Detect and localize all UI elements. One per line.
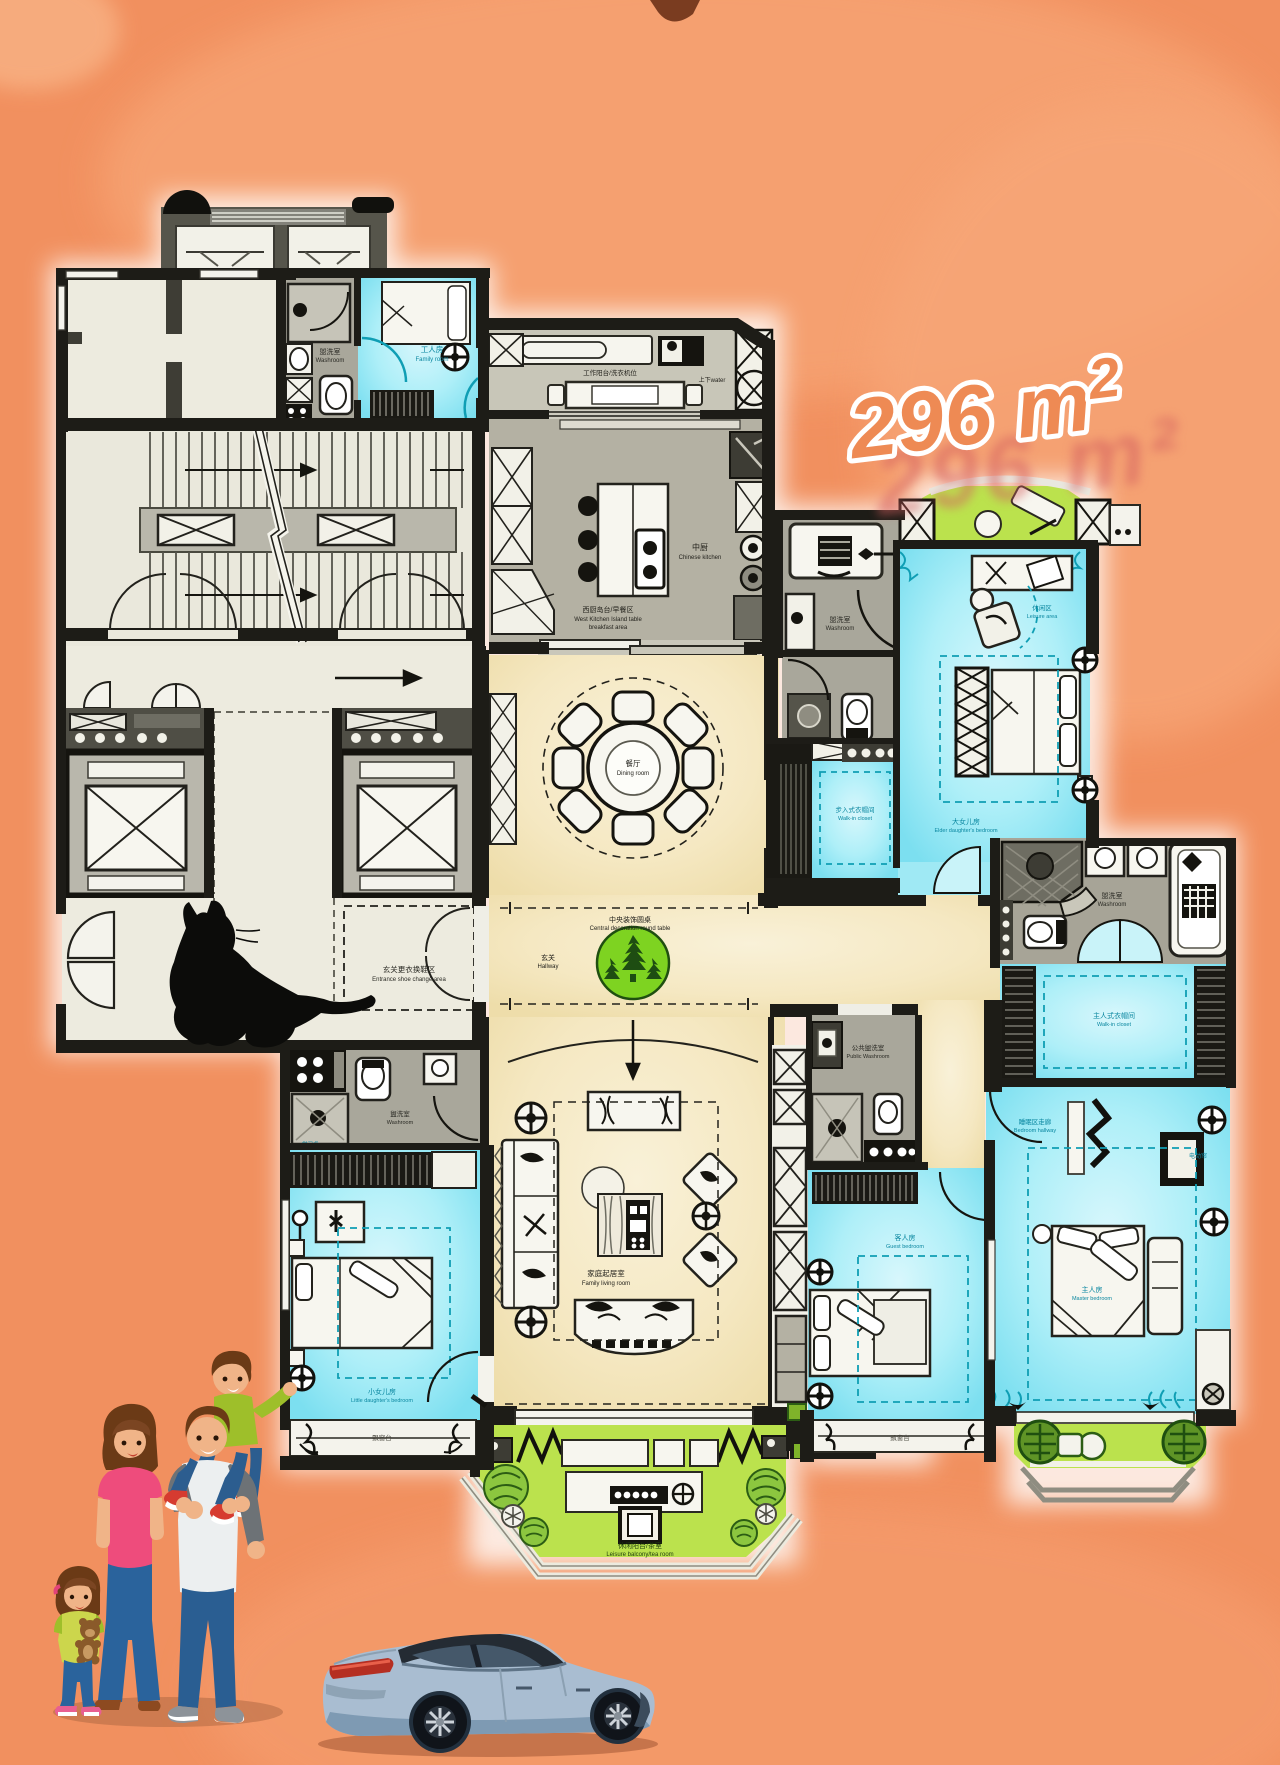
svg-text:睡眠区走廊: 睡眠区走廊 <box>1019 1117 1052 1126</box>
svg-text:Chinese kitchen: Chinese kitchen <box>679 555 722 561</box>
svg-text:Central decoration round table: Central decoration round table <box>590 926 671 932</box>
svg-text:Washroom: Washroom <box>316 358 345 364</box>
svg-text:大女儿房: 大女儿房 <box>952 817 980 826</box>
svg-text:Family living room: Family living room <box>582 1281 630 1287</box>
svg-text:Walk-in closet: Walk-in closet <box>1097 1022 1131 1028</box>
svg-text:Family room: Family room <box>415 357 448 363</box>
svg-text:Master bedroom: Master bedroom <box>1072 1296 1112 1302</box>
svg-text:西厨岛台/早餐区: 西厨岛台/早餐区 <box>583 605 634 614</box>
svg-text:公共盥洗室: 公共盥洗室 <box>852 1043 885 1052</box>
svg-text:小女儿房: 小女儿房 <box>368 1387 396 1396</box>
svg-text:Bedroom hallway: Bedroom hallway <box>1014 1128 1056 1134</box>
svg-text:工作阳台/洗衣机位: 工作阳台/洗衣机位 <box>583 368 637 377</box>
svg-text:工人房: 工人房 <box>421 344 444 354</box>
svg-text:Dining room: Dining room <box>617 771 649 777</box>
svg-text:休闲区: 休闲区 <box>1032 603 1052 612</box>
svg-text:Walk-in closet: Walk-in closet <box>838 816 872 822</box>
svg-text:Guest bedroom: Guest bedroom <box>886 1244 924 1250</box>
svg-text:Little daughter's bedroom: Little daughter's bedroom <box>351 1398 413 1404</box>
svg-text:Public Washroom: Public Washroom <box>847 1054 890 1060</box>
svg-text:飘窗台: 飘窗台 <box>890 1433 910 1442</box>
svg-text:盥洗室: 盥洗室 <box>830 615 851 624</box>
svg-text:Leisure balcony/tea room: Leisure balcony/tea room <box>606 1552 673 1558</box>
svg-text:盥洗室: 盥洗室 <box>320 347 341 356</box>
svg-text:餐厅: 餐厅 <box>626 759 641 768</box>
svg-text:盥洗室: 盥洗室 <box>390 1109 410 1118</box>
svg-text:Washroom: Washroom <box>826 626 855 632</box>
svg-text:步入式衣帽间: 步入式衣帽间 <box>836 805 875 814</box>
svg-text:Leisure area: Leisure area <box>1027 614 1059 620</box>
svg-text:主人式衣帽间: 主人式衣帽间 <box>1093 1011 1135 1020</box>
svg-text:休闲阳台/茶室: 休闲阳台/茶室 <box>618 1541 662 1550</box>
svg-text:West Kitchen Island table: West Kitchen Island table <box>574 617 642 623</box>
svg-text:电动帘: 电动帘 <box>1189 1152 1207 1160</box>
svg-text:Washroom: Washroom <box>387 1120 414 1126</box>
svg-text:客人房: 客人房 <box>895 1233 916 1242</box>
svg-text:玄关: 玄关 <box>541 953 555 962</box>
svg-text:中央装饰圆桌: 中央装饰圆桌 <box>609 915 651 924</box>
svg-text:Elder daughter's bedroom: Elder daughter's bedroom <box>934 828 998 834</box>
svg-text:上下water: 上下water <box>699 376 726 384</box>
svg-text:主人房: 主人房 <box>1082 1285 1103 1294</box>
svg-text:breakfast area: breakfast area <box>589 625 628 631</box>
svg-text:Washroom: Washroom <box>1098 902 1127 908</box>
svg-text:家庭起居室: 家庭起居室 <box>587 1268 625 1278</box>
svg-text:Hallway: Hallway <box>537 964 558 970</box>
svg-text:飘窗台: 飘窗台 <box>372 1433 392 1442</box>
svg-text:中厨: 中厨 <box>692 542 708 552</box>
svg-text:盥洗室: 盥洗室 <box>1102 891 1123 900</box>
